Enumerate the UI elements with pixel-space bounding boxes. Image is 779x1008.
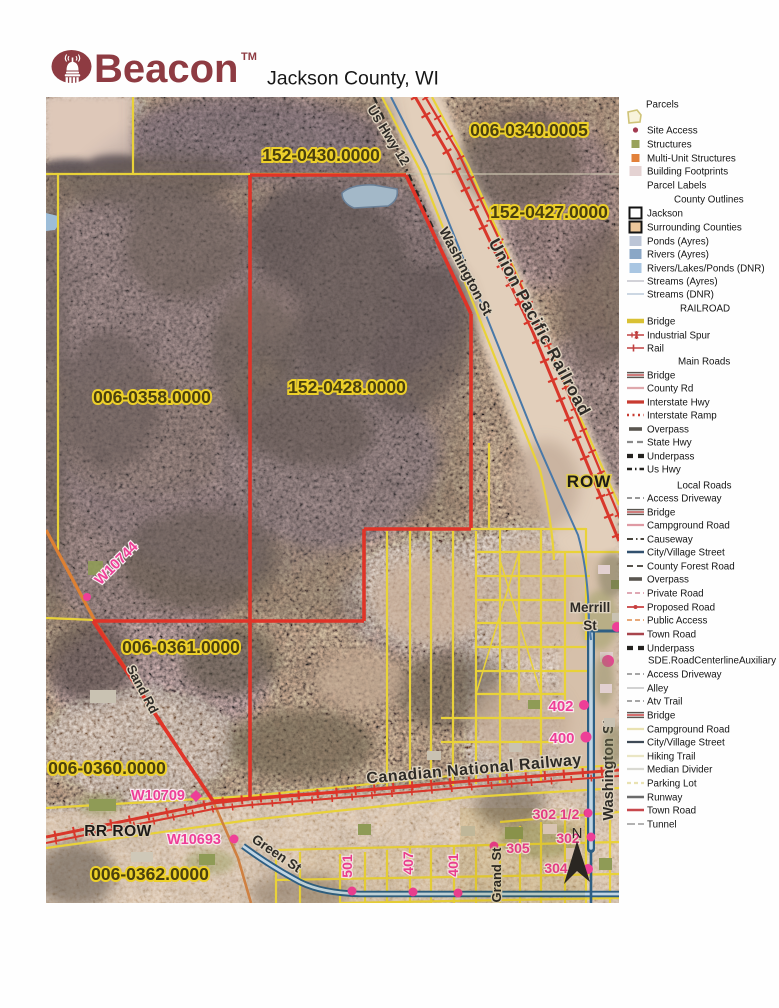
svg-text:SDE.RoadCenterlineAuxiliary: SDE.RoadCenterlineAuxiliary [648, 656, 776, 667]
svg-text:402: 402 [548, 698, 573, 715]
svg-text:Parcel Labels: Parcel Labels [647, 181, 706, 192]
svg-text:Campground Road: Campground Road [647, 521, 730, 532]
svg-text:Town Road: Town Road [647, 630, 696, 641]
svg-text:St: St [583, 618, 597, 633]
svg-text:006-0361.0000: 006-0361.0000 [122, 637, 240, 657]
svg-text:TM: TM [241, 51, 257, 63]
svg-text:County Rd: County Rd [647, 384, 693, 395]
svg-text:State Hwy: State Hwy [647, 438, 692, 449]
svg-text:Parcels: Parcels [646, 100, 679, 111]
svg-text:Tunnel: Tunnel [647, 820, 677, 831]
svg-text:Bridge: Bridge [647, 711, 676, 722]
svg-text:Underpass: Underpass [647, 452, 694, 463]
svg-text:RAILROAD: RAILROAD [680, 304, 730, 315]
svg-text:Town Road: Town Road [647, 806, 696, 817]
svg-text:Building Footprints: Building Footprints [647, 167, 728, 178]
svg-text:Overpass: Overpass [647, 575, 689, 586]
svg-text:County Outlines: County Outlines [674, 195, 744, 206]
svg-text:Atv Trail: Atv Trail [647, 697, 682, 708]
svg-text:Bridge: Bridge [647, 508, 676, 519]
svg-text:W10693: W10693 [167, 832, 221, 848]
svg-text:Streams (Ayres): Streams (Ayres) [647, 277, 718, 288]
svg-text:Runway: Runway [647, 793, 682, 804]
svg-text:Ponds (Ayres): Ponds (Ayres) [647, 237, 709, 248]
svg-text:Beacon: Beacon [94, 47, 239, 91]
svg-text:Interstate Ramp: Interstate Ramp [647, 411, 717, 422]
svg-text:Rivers/Lakes/Ponds (DNR): Rivers/Lakes/Ponds (DNR) [647, 264, 765, 275]
svg-text:Streams (DNR): Streams (DNR) [647, 290, 714, 301]
svg-text:Access Driveway: Access Driveway [647, 494, 722, 505]
svg-text:400: 400 [549, 730, 574, 747]
svg-text:Us Hwy: Us Hwy [647, 465, 681, 476]
svg-text:Bridge: Bridge [647, 317, 676, 328]
svg-text:Underpass: Underpass [647, 644, 694, 655]
svg-text:Median Divider: Median Divider [647, 765, 713, 776]
svg-text:Industrial Spur: Industrial Spur [647, 331, 711, 342]
svg-text:Alley: Alley [647, 684, 668, 695]
svg-text:Local Roads: Local Roads [677, 481, 732, 492]
svg-text:Access Driveway: Access Driveway [647, 670, 722, 681]
svg-text:Parking Lot: Parking Lot [647, 779, 697, 790]
svg-text:Rivers (Ayres): Rivers (Ayres) [647, 250, 709, 261]
svg-text:Jackson: Jackson [647, 209, 683, 220]
svg-text:Multi-Unit Structures: Multi-Unit Structures [647, 154, 736, 165]
svg-text:Structures: Structures [647, 140, 692, 151]
svg-text:Hiking Trail: Hiking Trail [647, 752, 695, 763]
svg-text:RR ROW: RR ROW [84, 823, 152, 840]
svg-text:Overpass: Overpass [647, 425, 689, 436]
svg-text:Campground Road: Campground Road [647, 725, 730, 736]
svg-text:006-0360.0000: 006-0360.0000 [48, 758, 166, 778]
svg-text:152-0427.0000: 152-0427.0000 [490, 202, 608, 222]
svg-text:152-0430.0000: 152-0430.0000 [262, 145, 380, 165]
svg-text:N: N [572, 825, 583, 842]
svg-text:W10709: W10709 [131, 788, 185, 804]
svg-text:Causeway: Causeway [647, 535, 693, 546]
svg-text:City/Village Street: City/Village Street [647, 738, 725, 749]
svg-text:Jackson County, WI: Jackson County, WI [267, 68, 439, 90]
svg-text:Site Access: Site Access [647, 126, 698, 137]
svg-text:City/Village Street: City/Village Street [647, 548, 725, 559]
svg-text:ROW: ROW [567, 472, 612, 491]
svg-text:Private Road: Private Road [647, 589, 704, 600]
svg-text:Interstate Hwy: Interstate Hwy [647, 398, 710, 409]
svg-text:Public Access: Public Access [647, 616, 708, 627]
svg-text:Merrill: Merrill [570, 600, 611, 615]
svg-text:Proposed Road: Proposed Road [647, 603, 715, 614]
svg-text:152-0428.0000: 152-0428.0000 [288, 377, 406, 397]
svg-text:Main Roads: Main Roads [678, 357, 730, 368]
svg-text:Bridge: Bridge [647, 371, 676, 382]
svg-text:Rail: Rail [647, 344, 664, 355]
svg-text:006-0362.0000: 006-0362.0000 [91, 864, 209, 884]
svg-text:County Forest Road: County Forest Road [647, 562, 735, 573]
svg-text:006-0358.0000: 006-0358.0000 [93, 387, 211, 407]
svg-text:006-0340.0005: 006-0340.0005 [470, 120, 588, 140]
svg-text:Surrounding Counties: Surrounding Counties [647, 223, 742, 234]
